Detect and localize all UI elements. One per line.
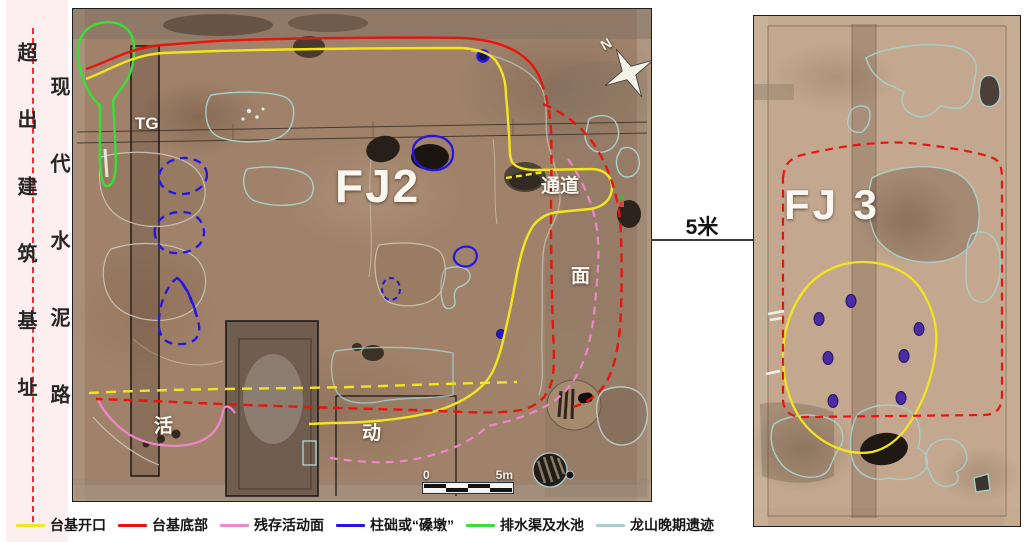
legend-label-platform-opening: 台基开口 (50, 515, 106, 535)
distance-label: 5米 (650, 211, 754, 241)
fj3-title: FJ 3 (784, 184, 880, 226)
legend-item-platform-opening: 台基开口 (16, 515, 106, 535)
label-beyond-foundation: 超出建筑基址 (11, 42, 40, 444)
legend: 台基开口 台基底部 残存活动面 柱础或“磉墩” 排水渠及水池 龙山晚期遗迹 (62, 512, 668, 538)
legend-item-platform-bottom: 台基底部 (118, 515, 208, 535)
legend-label-drainage: 排水渠及水池 (500, 515, 584, 535)
fj2-photo-panel: FJ2 TG 通道 面 活 动 N 0 5m (72, 8, 652, 502)
fj3-photo-panel: FJ 3 (753, 15, 1021, 527)
column-base-outlines (155, 51, 506, 345)
legend-swatch-platform-opening (16, 524, 45, 527)
surface-char-label: 面 (571, 267, 590, 286)
legend-item-longshan: 龙山晚期遗迹 (596, 515, 714, 535)
edge-markers (766, 311, 784, 374)
pit-with-streaks (547, 380, 601, 430)
legend-label-activity-surface: 残存活动面 (254, 515, 324, 535)
activity-char-1-label: 活 (154, 417, 173, 436)
legend-swatch-platform-bottom (118, 524, 147, 527)
legend-swatch-longshan (596, 524, 625, 527)
platform-opening-lines (86, 48, 612, 424)
legend-item-drainage: 排水渠及水池 (466, 515, 584, 535)
fj2-title: FJ2 (335, 163, 420, 209)
fj3-annotation-overlay (754, 16, 1020, 526)
legend-item-column-base: 柱础或“磉墩” (336, 515, 454, 535)
scale-zero-label: 0 (423, 468, 430, 482)
scale-bar: 0 5m (423, 468, 513, 493)
survey-marker-green (619, 195, 624, 200)
legend-swatch-activity-surface (220, 524, 249, 527)
legend-swatch-column-base (336, 524, 365, 527)
survey-marker-red (619, 202, 624, 207)
activity-char-2-label: 动 (362, 424, 381, 443)
scale-end-label: 5m (496, 468, 513, 482)
legend-label-platform-bottom: 台基底部 (152, 515, 208, 535)
distance-line (651, 239, 755, 241)
legend-label-longshan: 龙山晚期遗迹 (630, 515, 714, 535)
label-modern-road: 现代水泥路 (44, 76, 73, 461)
legend-item-activity-surface: 残存活动面 (220, 515, 324, 535)
legend-swatch-drainage (466, 524, 495, 527)
tg-trench-label: TG (135, 115, 159, 132)
legend-label-column-base: 柱础或“磉墩” (370, 515, 454, 535)
passage-label: 通道 (541, 177, 579, 196)
